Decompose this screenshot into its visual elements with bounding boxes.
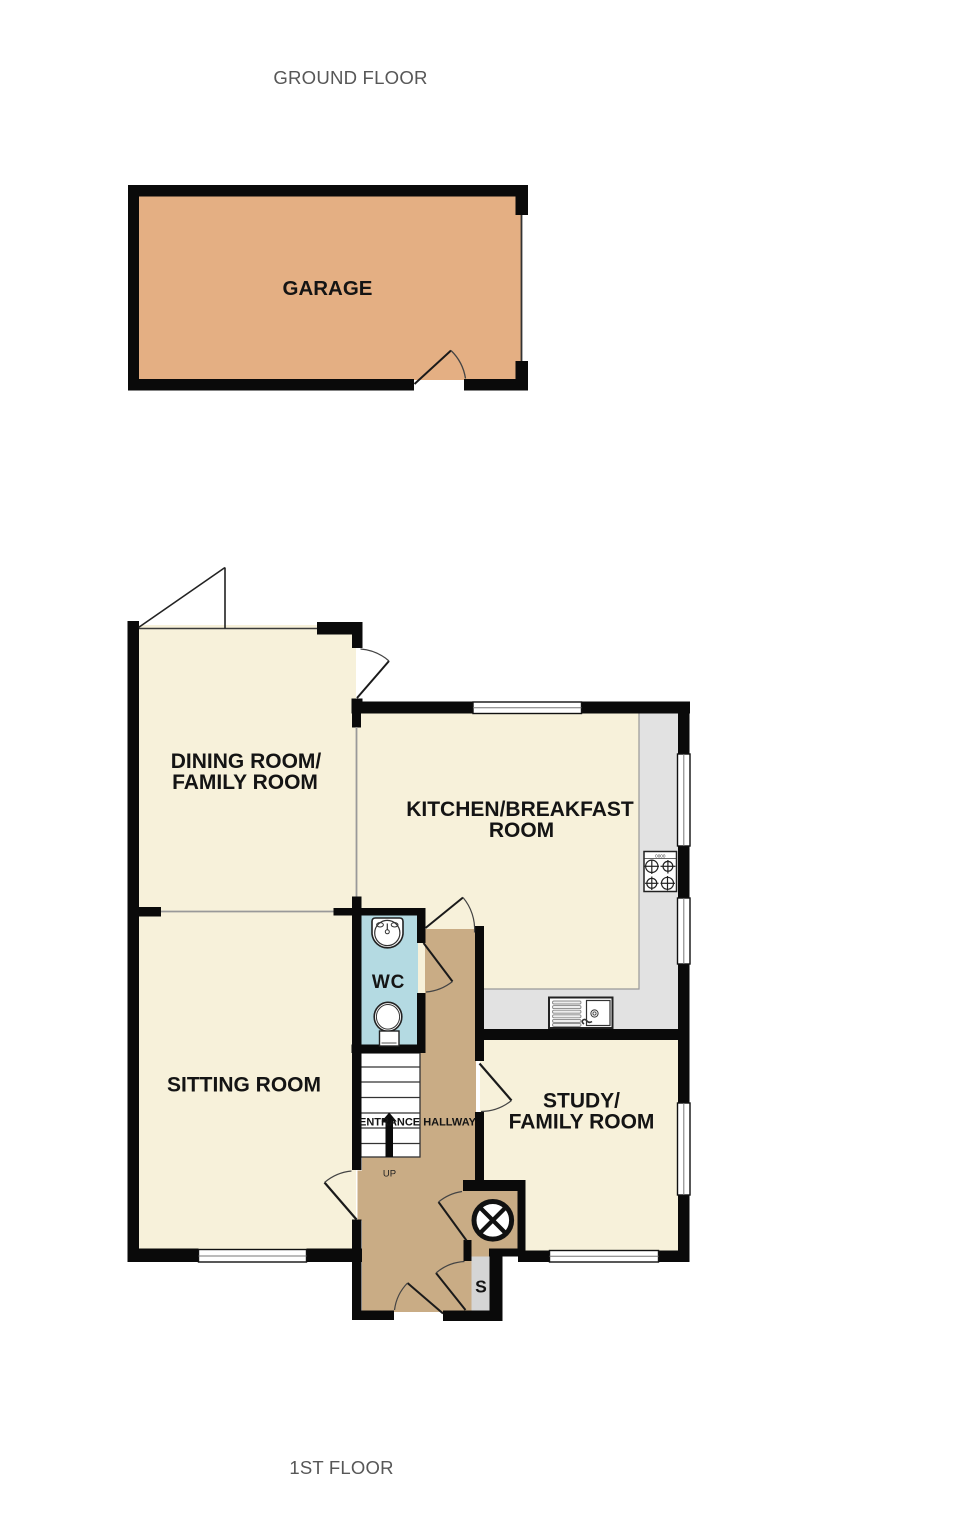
svg-text:ROOM: ROOM	[489, 819, 554, 842]
svg-text:FAMILY ROOM: FAMILY ROOM	[172, 771, 318, 794]
svg-text:STUDY/: STUDY/	[543, 1090, 620, 1113]
svg-text:KITCHEN/BREAKFAST: KITCHEN/BREAKFAST	[406, 798, 634, 821]
svg-text:GARAGE: GARAGE	[283, 277, 373, 300]
svg-text:S: S	[475, 1277, 487, 1297]
svg-text:1ST FLOOR: 1ST FLOOR	[289, 1457, 393, 1478]
svg-text:GROUND FLOOR: GROUND FLOOR	[273, 67, 427, 88]
svg-text:WC: WC	[372, 972, 405, 993]
svg-text:DINING ROOM/: DINING ROOM/	[171, 750, 322, 773]
svg-text:FAMILY ROOM: FAMILY ROOM	[509, 1111, 655, 1134]
svg-text:SITTING ROOM: SITTING ROOM	[167, 1074, 321, 1097]
svg-text:0000: 0000	[655, 853, 666, 858]
svg-text:ENTRANCE HALLWAY: ENTRANCE HALLWAY	[359, 1117, 477, 1129]
svg-text:UP: UP	[383, 1169, 396, 1180]
